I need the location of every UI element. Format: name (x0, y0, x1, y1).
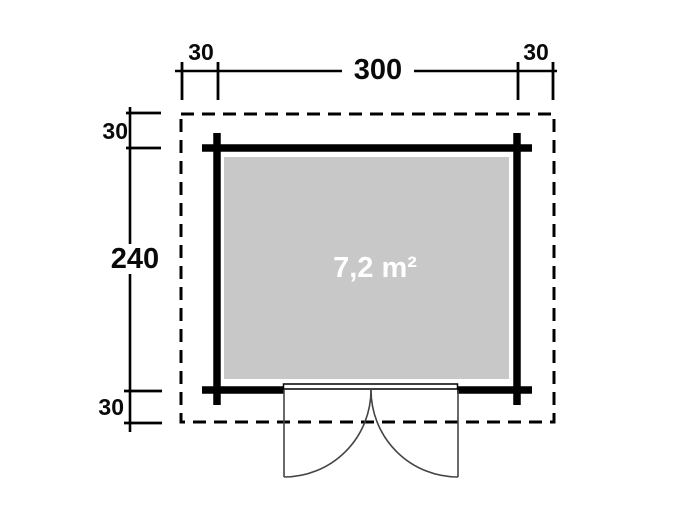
floor-area-label: 7,2 m² (275, 252, 475, 284)
door-swing-arc-right (371, 390, 458, 477)
dimension-label-top-right-overhang: 30 (516, 40, 556, 64)
dimension-label-left-bottom-overhang: 30 (82, 395, 124, 419)
double-door (284, 390, 458, 477)
dimension-label-depth: 240 (101, 244, 169, 274)
door-swing-arc-left (284, 390, 371, 477)
dimension-label-top-left-overhang: 30 (181, 40, 221, 64)
floor-plan-canvas: 30 300 30 30 240 30 7,2 m² (0, 0, 700, 525)
dimension-label-left-top-overhang: 30 (86, 119, 128, 143)
door-threshold (284, 384, 458, 389)
dimension-label-width: 300 (342, 55, 414, 85)
